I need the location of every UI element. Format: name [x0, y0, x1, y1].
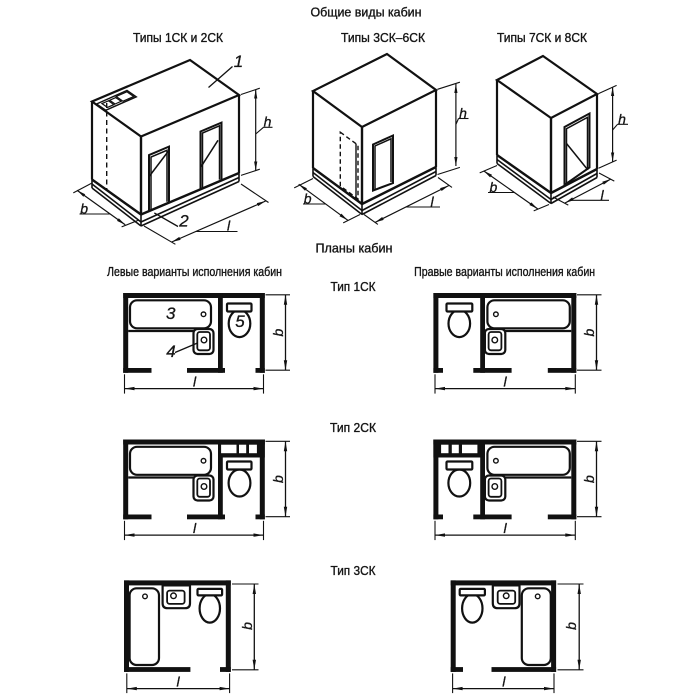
- svg-text:h: h: [264, 113, 272, 129]
- svg-text:b: b: [304, 191, 312, 207]
- svg-text:Тип 2СК: Тип 2СК: [330, 421, 377, 435]
- svg-text:b: b: [490, 179, 498, 195]
- svg-text:Планы кабин: Планы кабин: [316, 242, 393, 256]
- svg-text:Типы 1СК и 2СК: Типы 1СК и 2СК: [133, 31, 224, 45]
- svg-text:Тип 3СК: Тип 3СК: [331, 564, 377, 578]
- svg-text:1: 1: [234, 52, 243, 71]
- svg-text:2: 2: [178, 212, 189, 231]
- svg-text:b: b: [239, 622, 255, 630]
- svg-text:Типы 3СК–6СК: Типы 3СК–6СК: [341, 31, 426, 45]
- svg-text:b: b: [581, 475, 597, 483]
- svg-text:3: 3: [166, 304, 176, 323]
- svg-text:Тип 1СК: Тип 1СК: [331, 280, 377, 294]
- svg-text:b: b: [581, 328, 597, 336]
- svg-text:b: b: [80, 201, 88, 217]
- svg-text:Правые варианты исполнения каб: Правые варианты исполнения кабин: [414, 265, 595, 279]
- svg-text:5: 5: [235, 312, 245, 331]
- svg-text:Общие виды кабин: Общие виды кабин: [311, 6, 422, 20]
- svg-text:b: b: [270, 328, 286, 336]
- svg-text:b: b: [563, 622, 579, 630]
- svg-text:Типы 7СК и 8СК: Типы 7СК и 8СК: [497, 31, 588, 45]
- svg-text:4: 4: [166, 342, 175, 361]
- svg-text:b: b: [270, 475, 286, 483]
- svg-text:h: h: [618, 111, 626, 127]
- svg-text:h: h: [459, 105, 467, 121]
- svg-text:Левые варианты исполнения каби: Левые варианты исполнения кабин: [107, 265, 282, 279]
